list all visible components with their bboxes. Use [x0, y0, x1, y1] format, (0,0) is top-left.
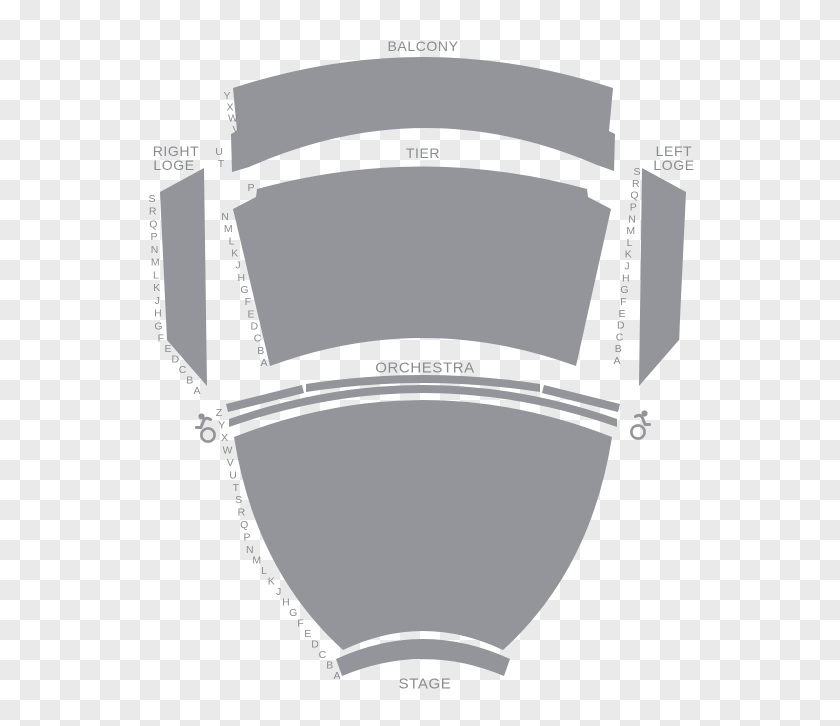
row-letter: Q: [149, 219, 157, 231]
row-letter: E: [247, 308, 254, 320]
right-loge-label-line2: LOGE: [153, 157, 194, 173]
orchestra-label: ORCHESTRA: [375, 360, 475, 377]
row-letter: S: [235, 494, 242, 506]
row-letter: G: [240, 284, 248, 296]
row-letter: L: [261, 565, 267, 577]
row-letter: P: [243, 532, 250, 544]
row-letter: V: [227, 457, 234, 469]
row-letter: P: [150, 231, 157, 243]
tier-section[interactable]: [233, 167, 611, 367]
seating-chart-canvas: BALCONY TIER RIGHT LOGE LEFT LOGE ORCHES…: [0, 0, 840, 726]
row-letter: X: [226, 101, 233, 113]
row-letter: F: [297, 618, 303, 630]
stage-label: STAGE: [399, 676, 452, 693]
row-letter: K: [153, 282, 160, 294]
row-letter: M: [252, 555, 261, 567]
row-letter: B: [257, 345, 264, 357]
row-letter: T: [218, 158, 225, 170]
left-loge-section[interactable]: [639, 168, 686, 386]
tier-label: TIER: [406, 145, 440, 161]
row-letter: G: [620, 284, 628, 296]
row-letter: Q: [240, 519, 248, 531]
row-letter: M: [626, 225, 635, 237]
row-letter: P: [630, 201, 637, 213]
row-letter: R: [149, 206, 157, 218]
row-letter: Y: [223, 90, 230, 102]
row-letter: J: [624, 261, 629, 273]
row-letter: H: [238, 272, 246, 284]
row-letter: C: [254, 333, 262, 345]
row-letter: T: [233, 482, 240, 494]
row-letter: H: [622, 272, 630, 284]
balcony-label: BALCONY: [387, 38, 458, 54]
row-letter: Z: [216, 407, 223, 419]
row-letter: F: [158, 333, 164, 345]
row-letter: N: [151, 244, 159, 256]
row-letter: R: [632, 178, 640, 190]
row-letter: S: [148, 193, 155, 205]
row-letter: L: [153, 269, 159, 281]
row-letter: R: [238, 507, 246, 519]
row-letter: G: [289, 607, 297, 619]
row-letter: U: [215, 146, 223, 158]
left-loge-label-line2: LOGE: [653, 157, 694, 173]
row-letter: W: [228, 113, 238, 125]
row-letter: Y: [218, 420, 225, 432]
row-letter: J: [276, 586, 281, 598]
row-letter: K: [268, 576, 275, 588]
row-letter: M: [224, 223, 233, 235]
row-letter: K: [231, 248, 238, 260]
row-letter: M: [151, 257, 160, 269]
row-letter: G: [154, 320, 162, 332]
row-letter: N: [628, 213, 636, 225]
wheelchair-icon[interactable]: [631, 410, 649, 438]
row-letter: E: [304, 628, 311, 640]
row-letter: A: [333, 670, 340, 682]
row-letter: F: [620, 296, 626, 308]
row-letter: E: [618, 308, 625, 320]
row-letter: Q: [630, 190, 638, 202]
row-letter: P: [247, 182, 254, 194]
row-letter: J: [235, 260, 240, 272]
row-letter: X: [221, 432, 228, 444]
row-letter: W: [222, 444, 232, 456]
row-letter: C: [616, 331, 624, 343]
orchestra-front-rows-band[interactable]: [336, 639, 510, 676]
row-letter: K: [625, 249, 632, 261]
row-letter: B: [326, 660, 333, 672]
row-letter: D: [617, 320, 625, 332]
row-letter: H: [154, 308, 162, 320]
wheelchair-icon[interactable]: [197, 413, 215, 441]
row-letter: E: [164, 343, 171, 355]
row-letter: L: [627, 237, 633, 249]
row-letter: V: [232, 124, 239, 136]
row-letter: N: [221, 211, 229, 223]
row-letter: L: [229, 235, 235, 247]
row-letter: B: [186, 375, 193, 387]
row-letter: A: [193, 385, 200, 397]
row-letter: J: [155, 295, 160, 307]
row-letter: D: [251, 321, 259, 333]
row-letter: B: [615, 343, 622, 355]
seat-map: BALCONY TIER RIGHT LOGE LEFT LOGE ORCHES…: [0, 0, 840, 726]
row-letter: U: [229, 469, 237, 481]
row-letter: A: [613, 355, 620, 367]
row-letter: F: [245, 296, 251, 308]
row-letter: A: [260, 357, 267, 369]
row-letter: S: [633, 166, 640, 178]
